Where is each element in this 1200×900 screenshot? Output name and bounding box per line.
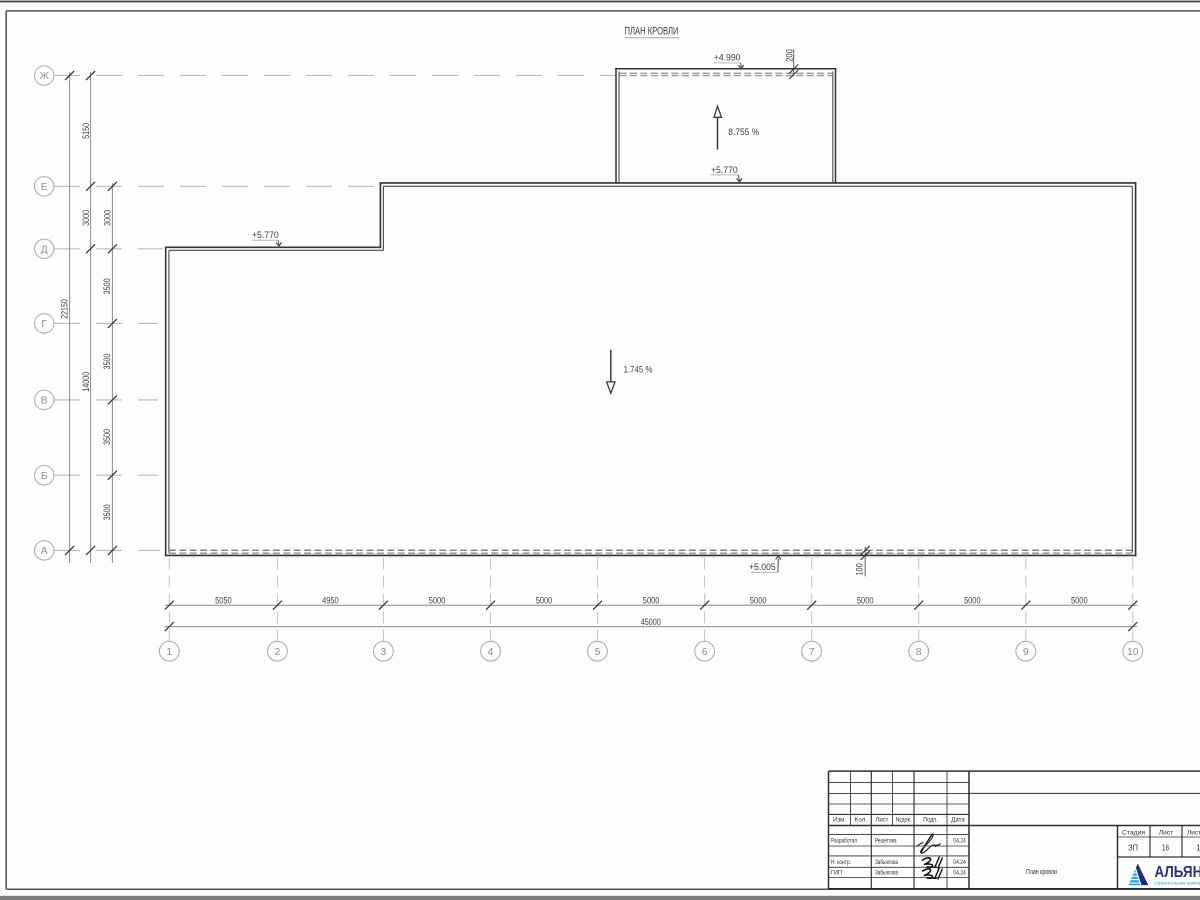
svg-text:1: 1 (1196, 843, 1200, 852)
svg-text:3500: 3500 (102, 353, 112, 369)
svg-text:8.755 %: 8.755 % (728, 127, 759, 137)
svg-text:5: 5 (595, 647, 601, 658)
svg-text:100: 100 (855, 563, 865, 576)
svg-text:Д: Д (41, 245, 48, 256)
svg-text:ЗП: ЗП (1128, 843, 1138, 852)
svg-text:Кол.: Кол. (855, 817, 868, 824)
svg-text:3500: 3500 (102, 429, 112, 445)
svg-text:22150: 22150 (59, 299, 69, 319)
svg-text:План кровли: План кровли (1026, 869, 1057, 876)
svg-text:Разработал: Разработал (831, 838, 857, 845)
svg-text:1: 1 (166, 647, 172, 658)
svg-text:04.24: 04.24 (953, 870, 966, 877)
svg-text:10: 10 (1127, 647, 1139, 658)
svg-text:А: А (41, 546, 48, 557)
svg-text:Листов: Листов (1187, 829, 1200, 836)
svg-text:4: 4 (488, 647, 494, 658)
svg-text:+4.990: +4.990 (714, 53, 741, 63)
svg-text:Забьялова: Забьялова (875, 870, 898, 877)
svg-text:АЛЬЯНС: АЛЬЯНС (1155, 864, 1200, 881)
svg-text:Подп.: Подп. (923, 817, 938, 824)
svg-text:Лист: Лист (1159, 829, 1174, 836)
svg-text:8: 8 (916, 647, 922, 658)
svg-text:Лист: Лист (875, 817, 888, 824)
svg-text:5000: 5000 (964, 595, 981, 605)
svg-text:+5.770: +5.770 (711, 165, 738, 175)
svg-text:9: 9 (1023, 647, 1029, 658)
svg-text:В: В (41, 396, 48, 407)
svg-text:4950: 4950 (322, 595, 339, 605)
svg-text:Решетова: Решетова (875, 838, 897, 845)
svg-text:Н. контр.: Н. контр. (831, 859, 851, 866)
svg-text:3: 3 (381, 647, 387, 658)
svg-text:1.745 %: 1.745 % (624, 365, 653, 375)
svg-text:+5.770: +5.770 (252, 230, 279, 240)
svg-text:5150: 5150 (81, 123, 91, 139)
svg-text:5000: 5000 (536, 595, 553, 605)
svg-text:3500: 3500 (102, 504, 112, 520)
svg-text:3500: 3500 (102, 278, 112, 294)
svg-text:строительная компания: строительная компания (1154, 881, 1200, 886)
svg-text:5000: 5000 (643, 595, 660, 605)
svg-text:Стадия: Стадия (1122, 829, 1146, 836)
svg-text:6: 6 (702, 647, 708, 658)
svg-text:№док.: №док. (896, 817, 912, 824)
svg-text:3000: 3000 (81, 210, 91, 226)
svg-text:200: 200 (785, 49, 795, 62)
svg-text:3000: 3000 (102, 210, 112, 226)
svg-text:5000: 5000 (750, 595, 767, 605)
svg-text:5000: 5000 (1071, 595, 1088, 605)
svg-text:16: 16 (1162, 843, 1169, 852)
svg-text:14000: 14000 (81, 372, 91, 392)
svg-text:5000: 5000 (857, 595, 874, 605)
svg-text:ПЛАН КРОВЛИ: ПЛАН КРОВЛИ (625, 25, 679, 37)
svg-text:Г: Г (41, 319, 47, 330)
svg-text:Е: Е (41, 182, 48, 193)
svg-text:5000: 5000 (429, 595, 446, 605)
svg-text:7: 7 (809, 647, 815, 658)
svg-text:Ж: Ж (40, 71, 49, 82)
svg-text:45000: 45000 (641, 617, 661, 627)
svg-text:04.24: 04.24 (953, 859, 966, 866)
svg-text:2: 2 (275, 647, 281, 658)
svg-text:Забьялова: Забьялова (875, 859, 898, 866)
svg-text:Б: Б (41, 471, 48, 482)
svg-text:Изм.: Изм. (833, 817, 846, 824)
svg-text:ГИП: ГИП (831, 870, 842, 877)
svg-text:04.24: 04.24 (953, 838, 966, 845)
svg-text:5050: 5050 (215, 595, 232, 605)
svg-text:+5.005: +5.005 (749, 562, 776, 572)
svg-text:Дата: Дата (951, 817, 965, 824)
